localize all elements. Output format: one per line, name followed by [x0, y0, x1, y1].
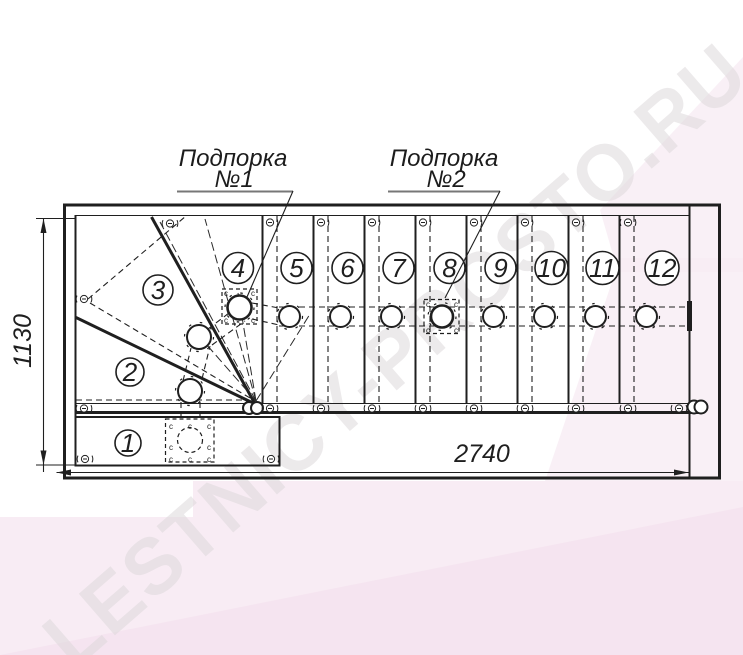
bolt-icon [313, 219, 329, 226]
leader-line [247, 191, 293, 297]
svg-text:c: c [426, 300, 430, 309]
svg-text:3: 3 [151, 275, 166, 305]
step-number-badge: 10 [535, 252, 568, 285]
svg-text:c: c [251, 316, 255, 325]
step-number-badge: 6 [332, 253, 363, 284]
bolt-icon [77, 455, 93, 462]
svg-text:2740: 2740 [453, 440, 510, 468]
step-number-badge: 2 [116, 357, 144, 387]
svg-text:1: 1 [121, 428, 135, 458]
svg-text:c: c [169, 443, 173, 452]
svg-text:c: c [169, 455, 173, 464]
step-number-badge: 5 [281, 253, 312, 284]
svg-text:7: 7 [391, 253, 407, 283]
svg-text:c: c [454, 326, 458, 335]
svg-text:1130: 1130 [9, 314, 37, 368]
svg-text:5: 5 [289, 253, 304, 283]
svg-text:c: c [188, 422, 192, 431]
bolt-icon [76, 295, 92, 302]
staircase-plan-page: LESTNICY-PROSTO.RU [0, 0, 743, 655]
svg-text:№2: №2 [426, 166, 465, 193]
step-number-badge: 9 [485, 253, 516, 284]
svg-text:c: c [207, 455, 211, 464]
svg-text:c: c [251, 289, 255, 298]
svg-text:12: 12 [648, 253, 677, 283]
chain-joint [187, 325, 211, 349]
svg-text:c: c [454, 300, 458, 309]
bolt-icon [262, 219, 278, 226]
winder-hidden-lines [76, 216, 250, 400]
svg-text:c: c [224, 289, 228, 298]
step-number-badge: 3 [143, 275, 173, 305]
step-number-badge: 11 [586, 252, 619, 285]
bolt-icon [364, 219, 380, 226]
svg-text:c: c [426, 326, 430, 335]
svg-text:6: 6 [340, 253, 355, 283]
svg-text:9: 9 [493, 253, 507, 283]
svg-text:4: 4 [231, 253, 245, 283]
svg-text:c: c [188, 455, 192, 464]
step-number-badge: 1 [115, 428, 141, 458]
bolt-icon [415, 219, 431, 226]
bolt-icon [162, 220, 178, 227]
step-number-badge: 12 [645, 251, 679, 285]
support-post-1: c c c c [222, 289, 257, 325]
svg-text:c: c [224, 316, 228, 325]
svg-text:c: c [207, 422, 211, 431]
svg-text:№1: №1 [214, 166, 253, 193]
svg-text:c: c [169, 422, 173, 431]
svg-text:2: 2 [122, 357, 138, 387]
chain-joint [178, 379, 202, 403]
step-number-badge: 7 [383, 253, 414, 284]
step-number-badge: 4 [223, 253, 254, 284]
svg-text:c: c [207, 443, 211, 452]
svg-text:11: 11 [589, 253, 616, 283]
base-plate-weld-marks: c c c c c c c c [169, 422, 211, 464]
staircase-plan-drawing: LESTNICY-PROSTO.RU [0, 0, 743, 655]
svg-text:10: 10 [537, 253, 566, 283]
